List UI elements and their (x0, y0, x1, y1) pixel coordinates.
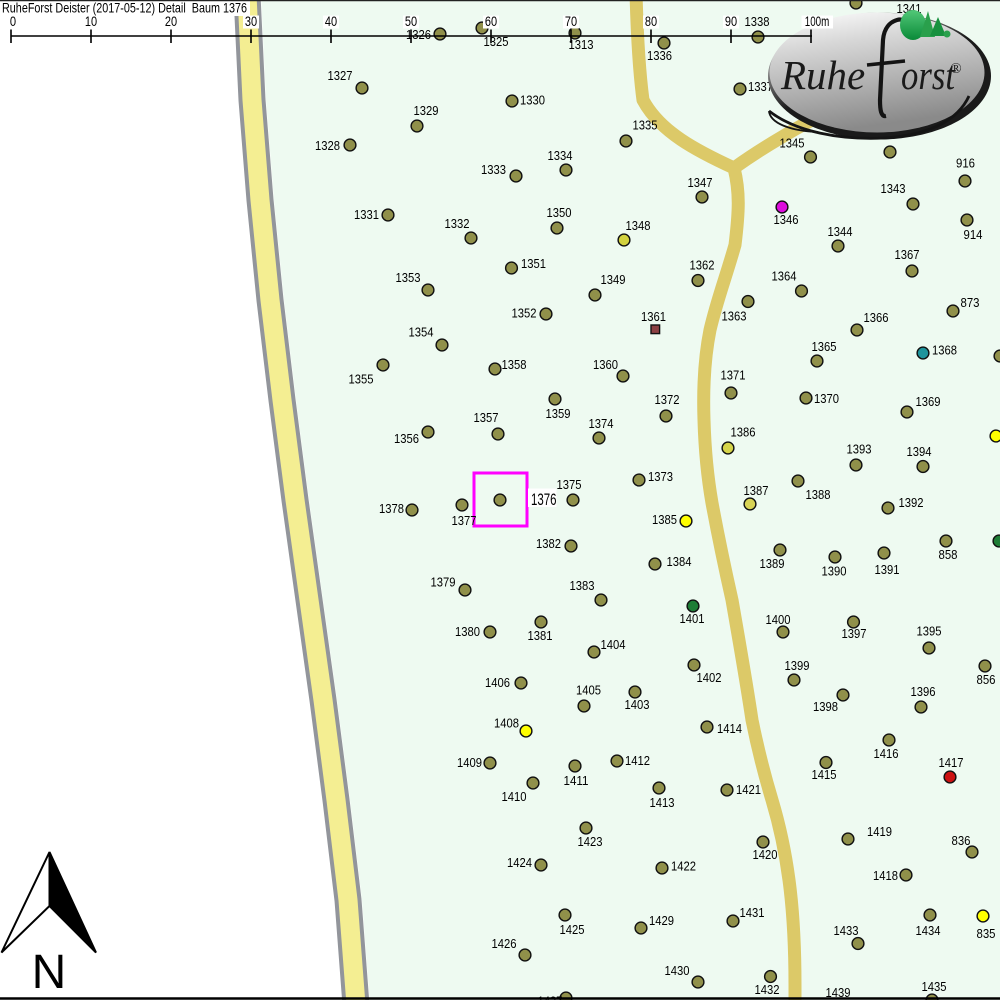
svg-text:1356: 1356 (394, 431, 419, 446)
svg-text:1409: 1409 (457, 755, 482, 770)
svg-text:1430: 1430 (665, 963, 690, 978)
svg-text:1422: 1422 (671, 859, 696, 874)
svg-text:1412: 1412 (625, 753, 650, 768)
svg-text:50: 50 (405, 13, 417, 29)
svg-text:1367: 1367 (895, 247, 920, 262)
svg-text:1390: 1390 (822, 564, 847, 579)
svg-text:1415: 1415 (812, 767, 837, 782)
svg-text:70: 70 (565, 13, 577, 29)
svg-text:1364: 1364 (772, 269, 797, 284)
svg-text:1424: 1424 (507, 855, 532, 870)
svg-text:1336: 1336 (647, 48, 672, 63)
svg-text:1353: 1353 (396, 270, 421, 285)
svg-text:1331: 1331 (354, 207, 379, 222)
svg-text:1426: 1426 (492, 936, 517, 951)
svg-text:1400: 1400 (766, 612, 791, 627)
svg-text:1429: 1429 (649, 913, 674, 928)
svg-text:1368: 1368 (932, 343, 957, 358)
svg-text:1394: 1394 (907, 444, 932, 459)
svg-text:60: 60 (485, 13, 497, 29)
svg-text:1354: 1354 (409, 325, 434, 340)
svg-text:1349: 1349 (601, 272, 626, 287)
svg-text:90: 90 (725, 13, 737, 29)
svg-text:1351: 1351 (521, 256, 546, 271)
svg-text:1343: 1343 (881, 181, 906, 196)
svg-text:1406: 1406 (485, 675, 510, 690)
svg-text:1413: 1413 (650, 795, 675, 810)
svg-text:1391: 1391 (875, 562, 900, 577)
svg-text:1389: 1389 (760, 556, 785, 571)
svg-text:1379: 1379 (431, 575, 456, 590)
svg-text:100m: 100m (805, 13, 830, 29)
svg-text:1357: 1357 (474, 410, 499, 425)
svg-text:1434: 1434 (916, 923, 941, 938)
svg-text:1381: 1381 (528, 628, 553, 643)
svg-text:1338: 1338 (745, 14, 770, 29)
svg-text:858: 858 (939, 547, 958, 562)
svg-text:1365: 1365 (812, 339, 837, 354)
svg-text:1329: 1329 (414, 103, 439, 118)
svg-text:RuheForst Deister (2017-05-12): RuheForst Deister (2017-05-12) Detail Ba… (2, 0, 247, 16)
svg-text:1374: 1374 (589, 416, 614, 431)
svg-text:1366: 1366 (864, 310, 889, 325)
svg-text:1371: 1371 (721, 368, 746, 383)
svg-text:1405: 1405 (576, 683, 601, 698)
svg-text:orst: orst (901, 52, 956, 98)
svg-text:1425: 1425 (560, 922, 585, 937)
svg-text:1344: 1344 (828, 224, 853, 239)
svg-text:1327: 1327 (328, 68, 353, 83)
svg-text:1420: 1420 (753, 847, 778, 862)
svg-text:1335: 1335 (633, 118, 658, 133)
svg-text:1347: 1347 (688, 175, 713, 190)
svg-text:1345: 1345 (780, 136, 805, 151)
svg-text:1332: 1332 (445, 216, 470, 231)
svg-text:914: 914 (964, 227, 983, 242)
svg-text:Ruhe: Ruhe (780, 52, 865, 98)
svg-text:1313: 1313 (569, 37, 594, 52)
svg-text:®: ® (950, 61, 961, 77)
svg-text:1399: 1399 (785, 658, 810, 673)
svg-text:856: 856 (977, 672, 996, 687)
svg-text:1408: 1408 (494, 716, 519, 731)
svg-text:1388: 1388 (806, 487, 831, 502)
svg-text:80: 80 (645, 13, 657, 29)
svg-text:1363: 1363 (722, 309, 747, 324)
svg-text:1377: 1377 (452, 513, 477, 528)
svg-text:1352: 1352 (512, 306, 537, 321)
svg-text:1326: 1326 (406, 27, 431, 42)
svg-text:836: 836 (952, 833, 971, 848)
svg-text:1359: 1359 (546, 406, 571, 421)
svg-text:1373: 1373 (648, 469, 673, 484)
svg-text:1411: 1411 (564, 773, 589, 788)
svg-text:1397: 1397 (842, 626, 867, 641)
svg-text:1414: 1414 (717, 721, 742, 736)
svg-text:1362: 1362 (690, 258, 715, 273)
svg-text:1433: 1433 (834, 923, 859, 938)
svg-text:1346: 1346 (774, 212, 799, 227)
svg-text:1350: 1350 (547, 205, 572, 220)
svg-text:1418: 1418 (873, 868, 898, 883)
svg-text:835: 835 (977, 926, 996, 941)
svg-text:1334: 1334 (548, 148, 573, 163)
svg-text:1372: 1372 (655, 392, 680, 407)
svg-text:1375: 1375 (557, 477, 582, 492)
svg-text:1421: 1421 (736, 782, 761, 797)
svg-text:1380: 1380 (455, 624, 480, 639)
svg-text:1417: 1417 (939, 755, 964, 770)
svg-text:1360: 1360 (593, 357, 618, 372)
svg-text:1355: 1355 (349, 372, 374, 387)
svg-text:1431: 1431 (740, 905, 765, 920)
svg-text:1382: 1382 (536, 536, 561, 551)
svg-text:1369: 1369 (916, 394, 941, 409)
svg-text:1387: 1387 (744, 483, 769, 498)
svg-text:1402: 1402 (697, 670, 722, 685)
svg-text:1330: 1330 (520, 93, 545, 108)
svg-text:1384: 1384 (667, 554, 692, 569)
svg-text:1383: 1383 (570, 578, 595, 593)
svg-text:N: N (32, 946, 67, 999)
svg-text:1423: 1423 (578, 834, 603, 849)
svg-text:873: 873 (961, 295, 980, 310)
svg-text:40: 40 (325, 13, 337, 29)
svg-text:1392: 1392 (899, 495, 924, 510)
svg-text:1370: 1370 (814, 391, 839, 406)
svg-text:1410: 1410 (502, 789, 527, 804)
svg-text:1435: 1435 (922, 979, 947, 994)
svg-text:916: 916 (956, 156, 975, 171)
svg-text:1385: 1385 (652, 512, 677, 527)
svg-text:1416: 1416 (874, 746, 899, 761)
svg-text:1404: 1404 (601, 637, 626, 652)
svg-text:1376: 1376 (531, 490, 557, 509)
svg-text:1393: 1393 (847, 442, 872, 457)
svg-text:1395: 1395 (917, 624, 942, 639)
svg-text:1432: 1432 (755, 982, 780, 997)
svg-text:1361: 1361 (641, 309, 666, 324)
svg-text:1348: 1348 (626, 218, 651, 233)
svg-text:1378: 1378 (379, 501, 404, 516)
svg-text:1333: 1333 (481, 162, 506, 177)
svg-text:1358: 1358 (502, 357, 527, 372)
svg-text:1386: 1386 (731, 425, 756, 440)
svg-text:1396: 1396 (911, 684, 936, 699)
svg-text:1419: 1419 (867, 824, 892, 839)
svg-text:1328: 1328 (315, 138, 340, 153)
svg-text:1403: 1403 (625, 697, 650, 712)
svg-text:1401: 1401 (680, 611, 705, 626)
svg-text:1398: 1398 (813, 699, 838, 714)
